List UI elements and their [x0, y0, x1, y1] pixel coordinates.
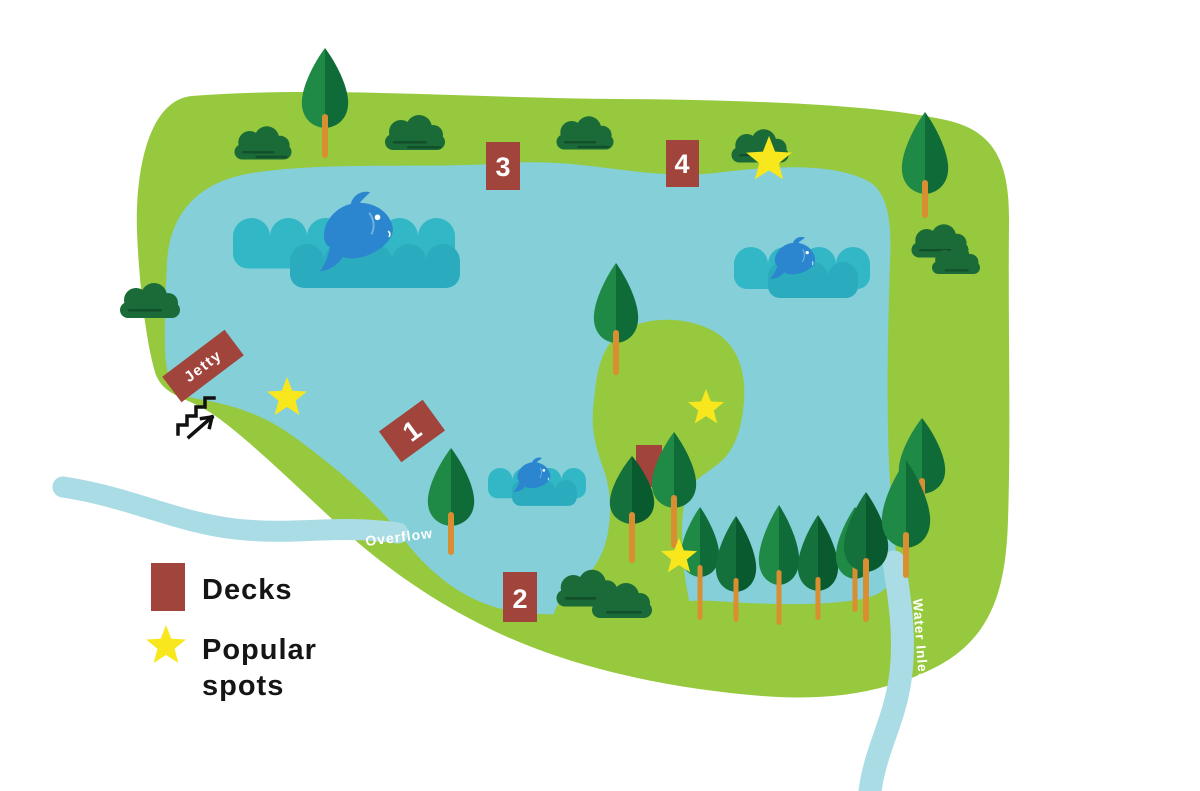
legend-popular-label-line1: Popular — [202, 634, 317, 666]
deck-3-marker: 3 — [486, 142, 520, 190]
legend-decks-label: Decks — [202, 574, 292, 606]
deck-4-marker: 4 — [666, 140, 699, 187]
deck-4-label: 4 — [674, 149, 689, 179]
deck-2-marker: 2 — [503, 572, 537, 622]
deck-3-label: 3 — [495, 152, 510, 182]
legend-popular-label-line2: spots — [202, 670, 284, 702]
lake-map-illustration: Jetty 3 4 1 2 — [0, 0, 1200, 791]
legend-star-icon — [146, 625, 186, 663]
legend-deck-swatch — [151, 563, 185, 611]
lake-map-canvas: Jetty 3 4 1 2 — [0, 0, 1200, 791]
deck-2-label: 2 — [512, 584, 527, 614]
legend: Decks Popular spots — [146, 563, 317, 702]
